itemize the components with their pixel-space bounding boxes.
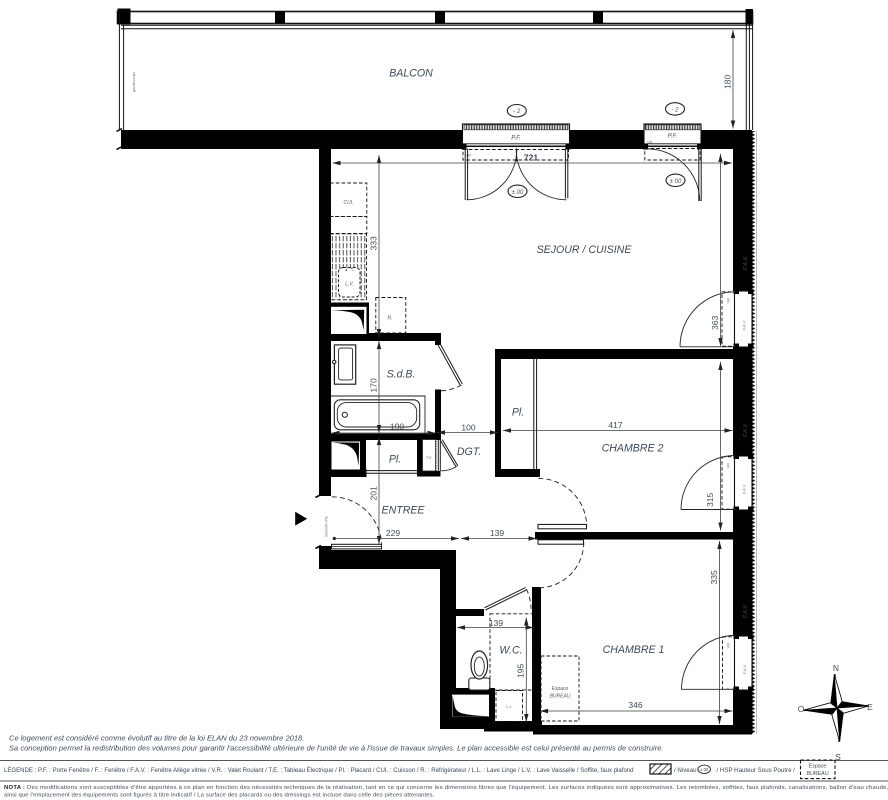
svg-text:Espace: Espace [552,686,569,692]
svg-text:LÉGENDE : P.F. : Porte Fenêtre: LÉGENDE : P.F. : Porte Fenêtre / F. : Fe… [4,767,634,774]
svg-text:417: 417 [608,420,622,430]
svg-text:O: O [798,704,805,714]
svg-text:NOTA : Des modifications sont: NOTA : Des modifications sont susceptibl… [4,785,888,791]
svg-text:- 2: - 2 [671,107,679,113]
svg-text:T.E: T.E [426,455,432,460]
svg-text:CHAMBRE 2: CHAMBRE 2 [602,443,664,455]
svg-text:721: 721 [524,153,538,163]
svg-text:Pl.: Pl. [512,407,524,419]
svg-text:190: 190 [390,422,404,432]
svg-text:180: 180 [723,75,733,89]
svg-text:± 00: ± 00 [700,767,709,772]
svg-text:/ HSP Hauteur Sous Poutre /: / HSP Hauteur Sous Poutre / [717,767,796,774]
svg-text:F.A.V.: F.A.V. [743,423,749,437]
svg-text:F.A.V: F.A.V [742,664,747,674]
svg-text:F.A.V.: F.A.V. [743,256,749,270]
svg-text:335: 335 [709,570,719,584]
svg-text:VR: VR [726,643,731,649]
svg-text:L.L.: L.L. [506,704,513,709]
svg-text:Pl.: Pl. [389,454,401,466]
svg-text:BUREAU: BUREAU [806,771,828,777]
svg-text:N: N [833,663,839,673]
svg-text:CHAMBRE 1: CHAMBRE 1 [603,644,665,656]
svg-text:139: 139 [490,528,504,538]
svg-text:F.A.V: F.A.V [742,320,747,330]
svg-text:315: 315 [705,493,715,507]
svg-text:W.C.: W.C. [499,645,522,657]
svg-text:E: E [867,702,873,712]
svg-text:gardecorps: gardecorps [131,72,136,92]
svg-text:139: 139 [489,618,503,628]
svg-text:F.A.V.: F.A.V. [743,604,749,618]
svg-text:CUI.: CUI. [344,200,354,206]
svg-text:229: 229 [386,528,400,538]
svg-text:VR: VR [726,463,731,469]
svg-text:363: 363 [710,316,720,330]
svg-text:100: 100 [461,423,475,433]
svg-text:DGT.: DGT. [457,446,481,458]
svg-text:/ Niveau: / Niveau [674,767,697,774]
svg-text:195: 195 [516,664,526,678]
svg-text:VR: VR [726,298,731,304]
svg-text:± 00: ± 00 [670,179,682,185]
svg-text:170: 170 [369,378,379,392]
svg-text:ainsi que l'emplacement des éq: ainsi que l'emplacement des équipements … [4,793,435,799]
svg-text:R.: R. [388,316,393,322]
svg-text:93x205+PB: 93x205+PB [324,516,329,537]
svg-text:Espace: Espace [809,764,827,770]
svg-text:P.F.: P.F. [511,136,520,142]
svg-text:333: 333 [369,236,379,250]
svg-text:SEJOUR / CUISINE: SEJOUR / CUISINE [537,244,633,256]
svg-text:± 00: ± 00 [512,190,524,196]
svg-text:ENTREE: ENTREE [382,505,426,517]
svg-text:346: 346 [628,700,642,710]
svg-text:F.A.V: F.A.V [742,484,747,494]
svg-text:L.V.: L.V. [345,282,354,288]
svg-text:BUREAU: BUREAU [550,694,571,700]
svg-text:S.d.B.: S.d.B. [387,369,416,381]
svg-text:201: 201 [369,486,379,500]
svg-text:Ce logement est considéré comm: Ce logement est considéré comme évolutif… [9,734,304,743]
svg-text:P.F.: P.F. [668,134,677,140]
svg-text:- 2: - 2 [513,109,521,115]
svg-text:BALCON: BALCON [389,68,433,80]
svg-text:VR: VR [466,153,472,158]
svg-text:Sa conception permet la redist: Sa conception permet la redistribution d… [9,744,664,753]
